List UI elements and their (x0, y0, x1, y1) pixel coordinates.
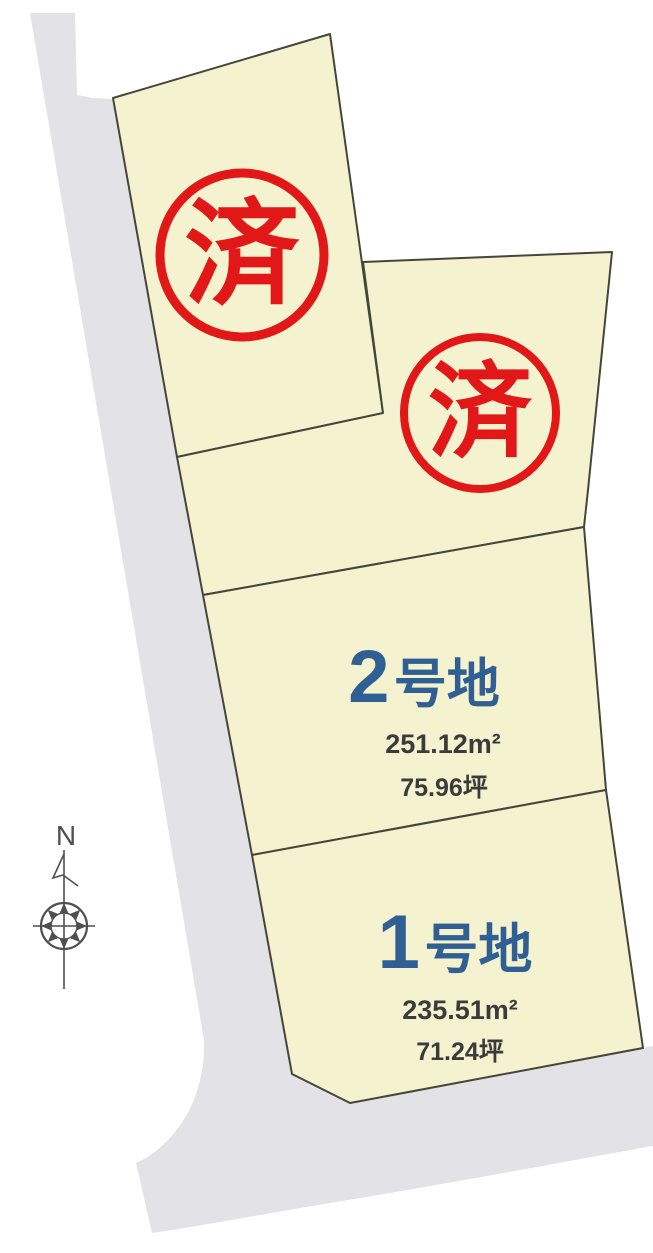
north-label: N (56, 820, 76, 851)
plot-1-suffix: 号地 (424, 920, 532, 980)
plot-1-area-tsubo: 71.24坪 (416, 1038, 504, 1066)
compass: N (33, 820, 95, 989)
plot-2-suffix: 号地 (394, 655, 500, 714)
sold-stamp-upper: 済 (160, 173, 324, 337)
plot-1-area-sqm: 235.51m² (402, 995, 518, 1025)
plot-2-number: 2 (348, 635, 389, 718)
plot-2-area-sqm: 251.12m² (385, 729, 501, 759)
land-plot-diagram: 済 済 2 号地 251.12m² 75.96坪 1 号地 235.51m² 7… (0, 0, 653, 1253)
plot-1-number: 1 (378, 900, 420, 985)
plot-2-area-tsubo: 75.96坪 (400, 774, 488, 802)
compass-needle (53, 854, 78, 886)
sold-stamp-character: 済 (428, 355, 533, 471)
sold-stamp-character: 済 (184, 191, 300, 319)
